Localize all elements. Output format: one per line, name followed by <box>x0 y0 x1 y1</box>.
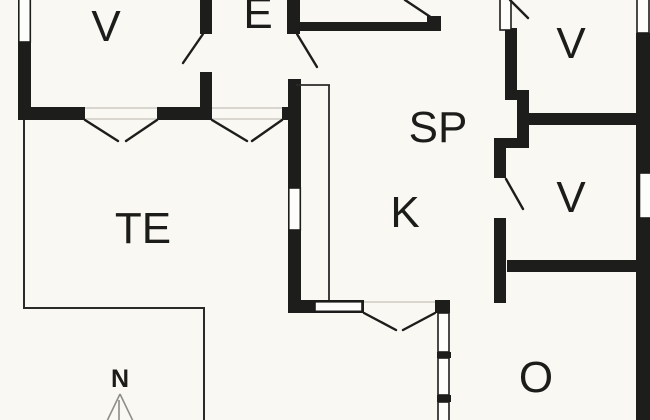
door-swing-e-terrace-left <box>212 120 247 141</box>
door-swing-v-terrace-right <box>126 120 157 141</box>
wall-hall-jog2 <box>494 138 529 148</box>
window-right-top <box>637 0 649 33</box>
room-label-v-top-left: V <box>91 2 121 51</box>
floor-plan-drawing: V E SP K V V TE O N <box>0 0 650 420</box>
wall-hall-lower-a <box>494 148 506 178</box>
door-swing-v-lower <box>506 179 523 209</box>
window-o-band-2 <box>438 358 449 395</box>
door-swing-v-terrace-left <box>85 120 118 141</box>
window-o-band-1 <box>438 313 449 352</box>
wall-between-v-rooms <box>529 113 638 125</box>
wall-hall-lower-b <box>494 218 506 303</box>
floor-plan: V E SP K V V TE O N <box>0 0 650 420</box>
north-arrow-left-leg <box>107 394 120 420</box>
door-swing-v-room <box>183 34 203 63</box>
walls <box>18 0 650 420</box>
window-k-bottom <box>315 302 362 312</box>
wall-hall-mid <box>517 100 529 140</box>
wall-k-left-upper <box>288 79 301 188</box>
windows <box>19 0 650 420</box>
wall-o-band-sep2 <box>437 395 451 402</box>
room-label-o-living: O <box>519 353 553 402</box>
room-label-kitchen: K <box>390 188 419 237</box>
door-swing-front-right <box>510 0 528 18</box>
wall-v-bottom-left <box>18 107 85 120</box>
window-o-band-3 <box>438 402 449 420</box>
wall-k-left-lower <box>288 230 301 302</box>
window-left-top <box>19 0 31 42</box>
room-label-terrace: TE <box>115 204 171 253</box>
north-label: N <box>111 365 129 393</box>
wall-v-o <box>507 260 638 272</box>
door-swing-entry-to-kitchen <box>297 34 317 67</box>
north-arrow-icon <box>107 394 133 420</box>
wall-ve-divider-bottom <box>200 72 212 120</box>
wall-k-bottom-cap <box>435 300 450 313</box>
wall-o-band-sep1 <box>437 352 451 358</box>
window-right-mid <box>640 173 650 218</box>
wall-hall-jog1 <box>505 90 529 100</box>
wall-right-outer <box>636 33 650 420</box>
room-label-entry: E <box>243 0 272 38</box>
window-entry-sidelight <box>500 0 511 30</box>
door-swing-k-terrace-right <box>403 313 435 330</box>
wall-entry-top <box>295 22 428 31</box>
wall-entry-top-cap <box>427 16 441 31</box>
north-arrow: N <box>107 365 133 420</box>
wall-hall-upper <box>505 28 517 95</box>
wall-ve-divider-top <box>200 0 212 34</box>
door-swing-e-terrace-right <box>252 120 282 141</box>
kitchen-counter <box>296 85 330 300</box>
room-label-v-upper-right: V <box>556 19 586 68</box>
room-label-sp: SP <box>409 103 468 152</box>
door-swing-front-left <box>405 0 432 18</box>
room-label-v-lower-right: V <box>556 173 586 222</box>
window-k-left <box>289 188 301 230</box>
door-swings <box>85 0 528 330</box>
north-arrow-right-leg <box>120 394 133 420</box>
door-swing-k-terrace-left <box>364 313 396 330</box>
